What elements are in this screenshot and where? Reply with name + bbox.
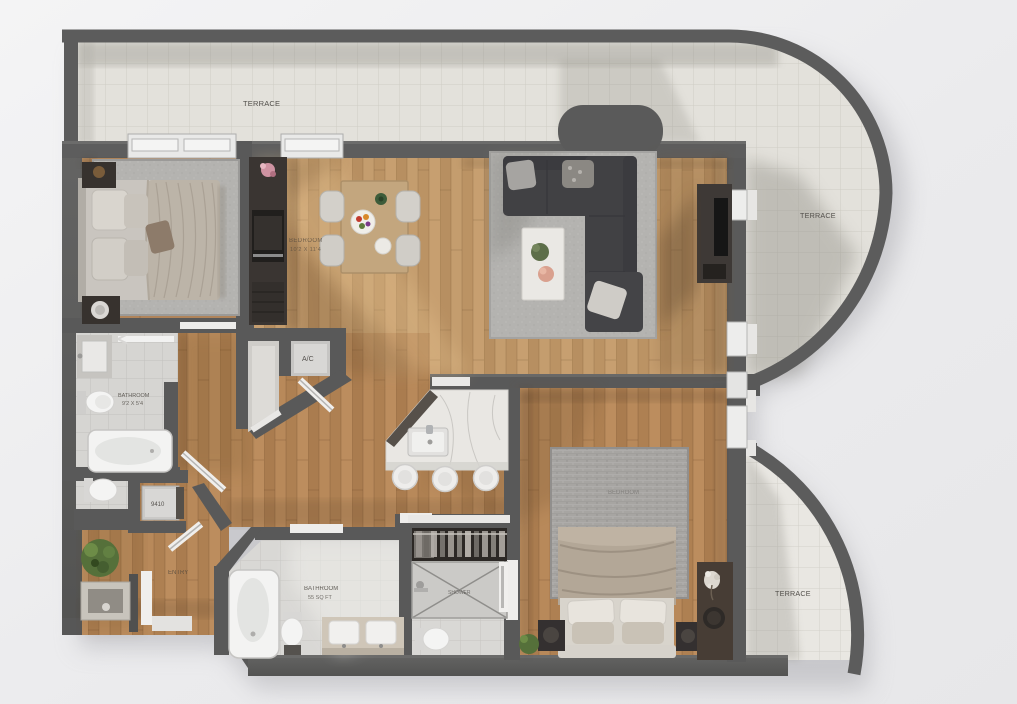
svg-text:ENTRY: ENTRY — [168, 570, 188, 576]
svg-text:SHOWER: SHOWER — [448, 590, 471, 596]
svg-text:TERRACE: TERRACE — [775, 589, 811, 598]
svg-text:55 SQ FT: 55 SQ FT — [308, 595, 332, 601]
svg-text:10'2 X 11'4: 10'2 X 11'4 — [290, 247, 321, 253]
svg-text:TERRACE: TERRACE — [243, 99, 280, 108]
svg-text:BATHROOM: BATHROOM — [304, 586, 338, 592]
svg-text:BEDROOM: BEDROOM — [289, 238, 323, 244]
svg-text:BEDROOM: BEDROOM — [608, 490, 639, 496]
svg-text:A/C: A/C — [302, 356, 314, 363]
svg-text:BATHROOM: BATHROOM — [118, 393, 150, 399]
svg-text:TERRACE: TERRACE — [800, 211, 836, 220]
svg-text:9410: 9410 — [151, 502, 165, 508]
svg-text:9'2 X 5'4: 9'2 X 5'4 — [122, 401, 143, 407]
